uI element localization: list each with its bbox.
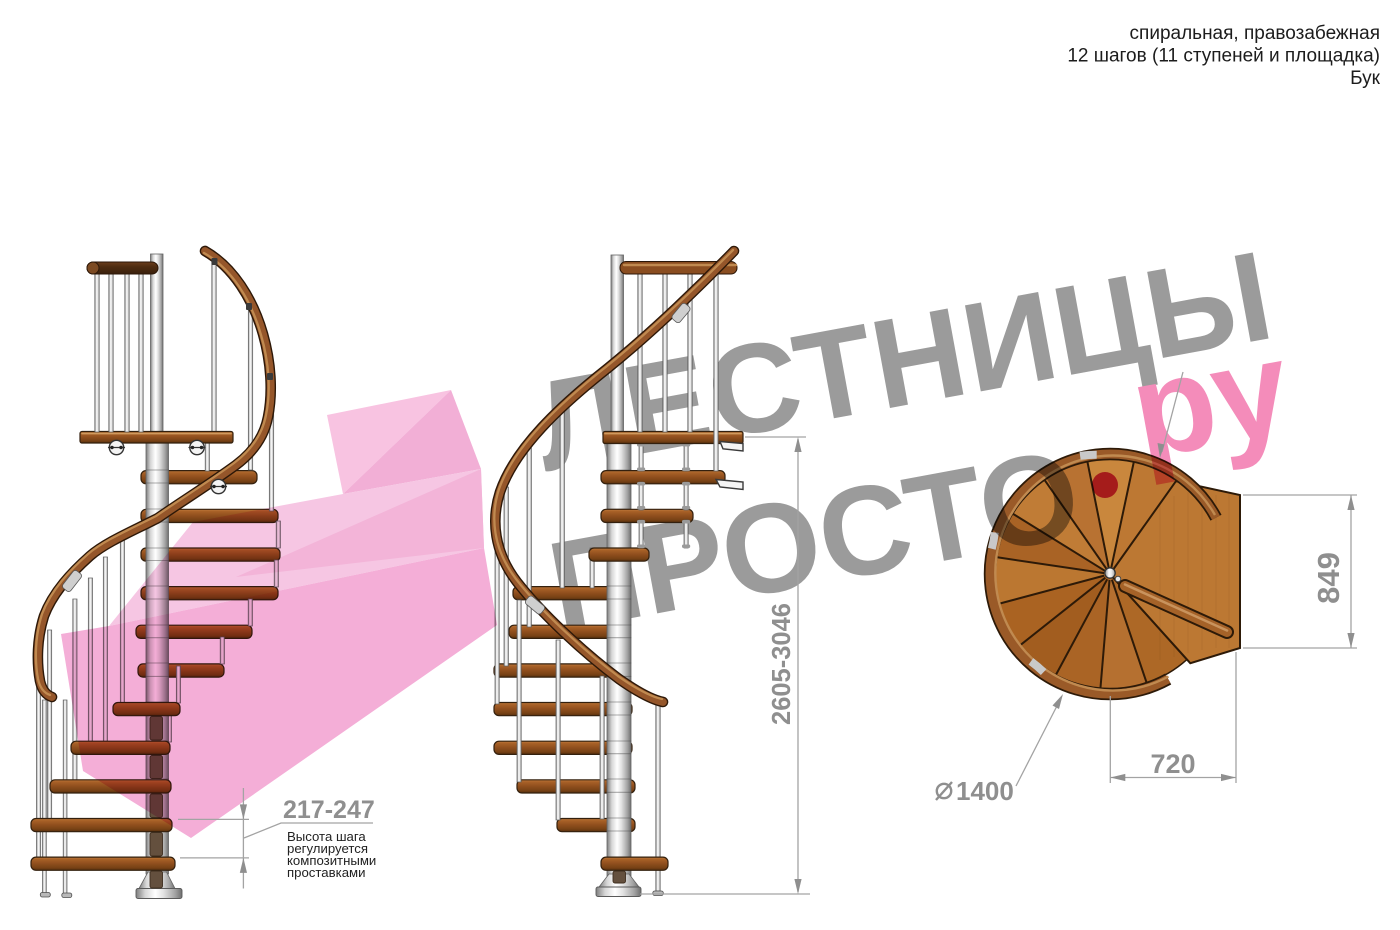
svg-text:720: 720 [1150,749,1195,779]
svg-text:проставками: проставками [287,865,365,880]
svg-text:849: 849 [1311,552,1346,604]
svg-text:Бук: Бук [1350,68,1381,89]
svg-text:ру: ру [1120,311,1300,488]
svg-text:1400: 1400 [956,776,1014,806]
svg-text:2605-3046: 2605-3046 [768,603,796,725]
svg-text:12 шагов (11 ступеней и площад: 12 шагов (11 ступеней и площадка) [1067,46,1380,67]
svg-text:217-247: 217-247 [283,796,375,824]
svg-text:спиральная, правозабежная: спиральная, правозабежная [1130,23,1380,44]
